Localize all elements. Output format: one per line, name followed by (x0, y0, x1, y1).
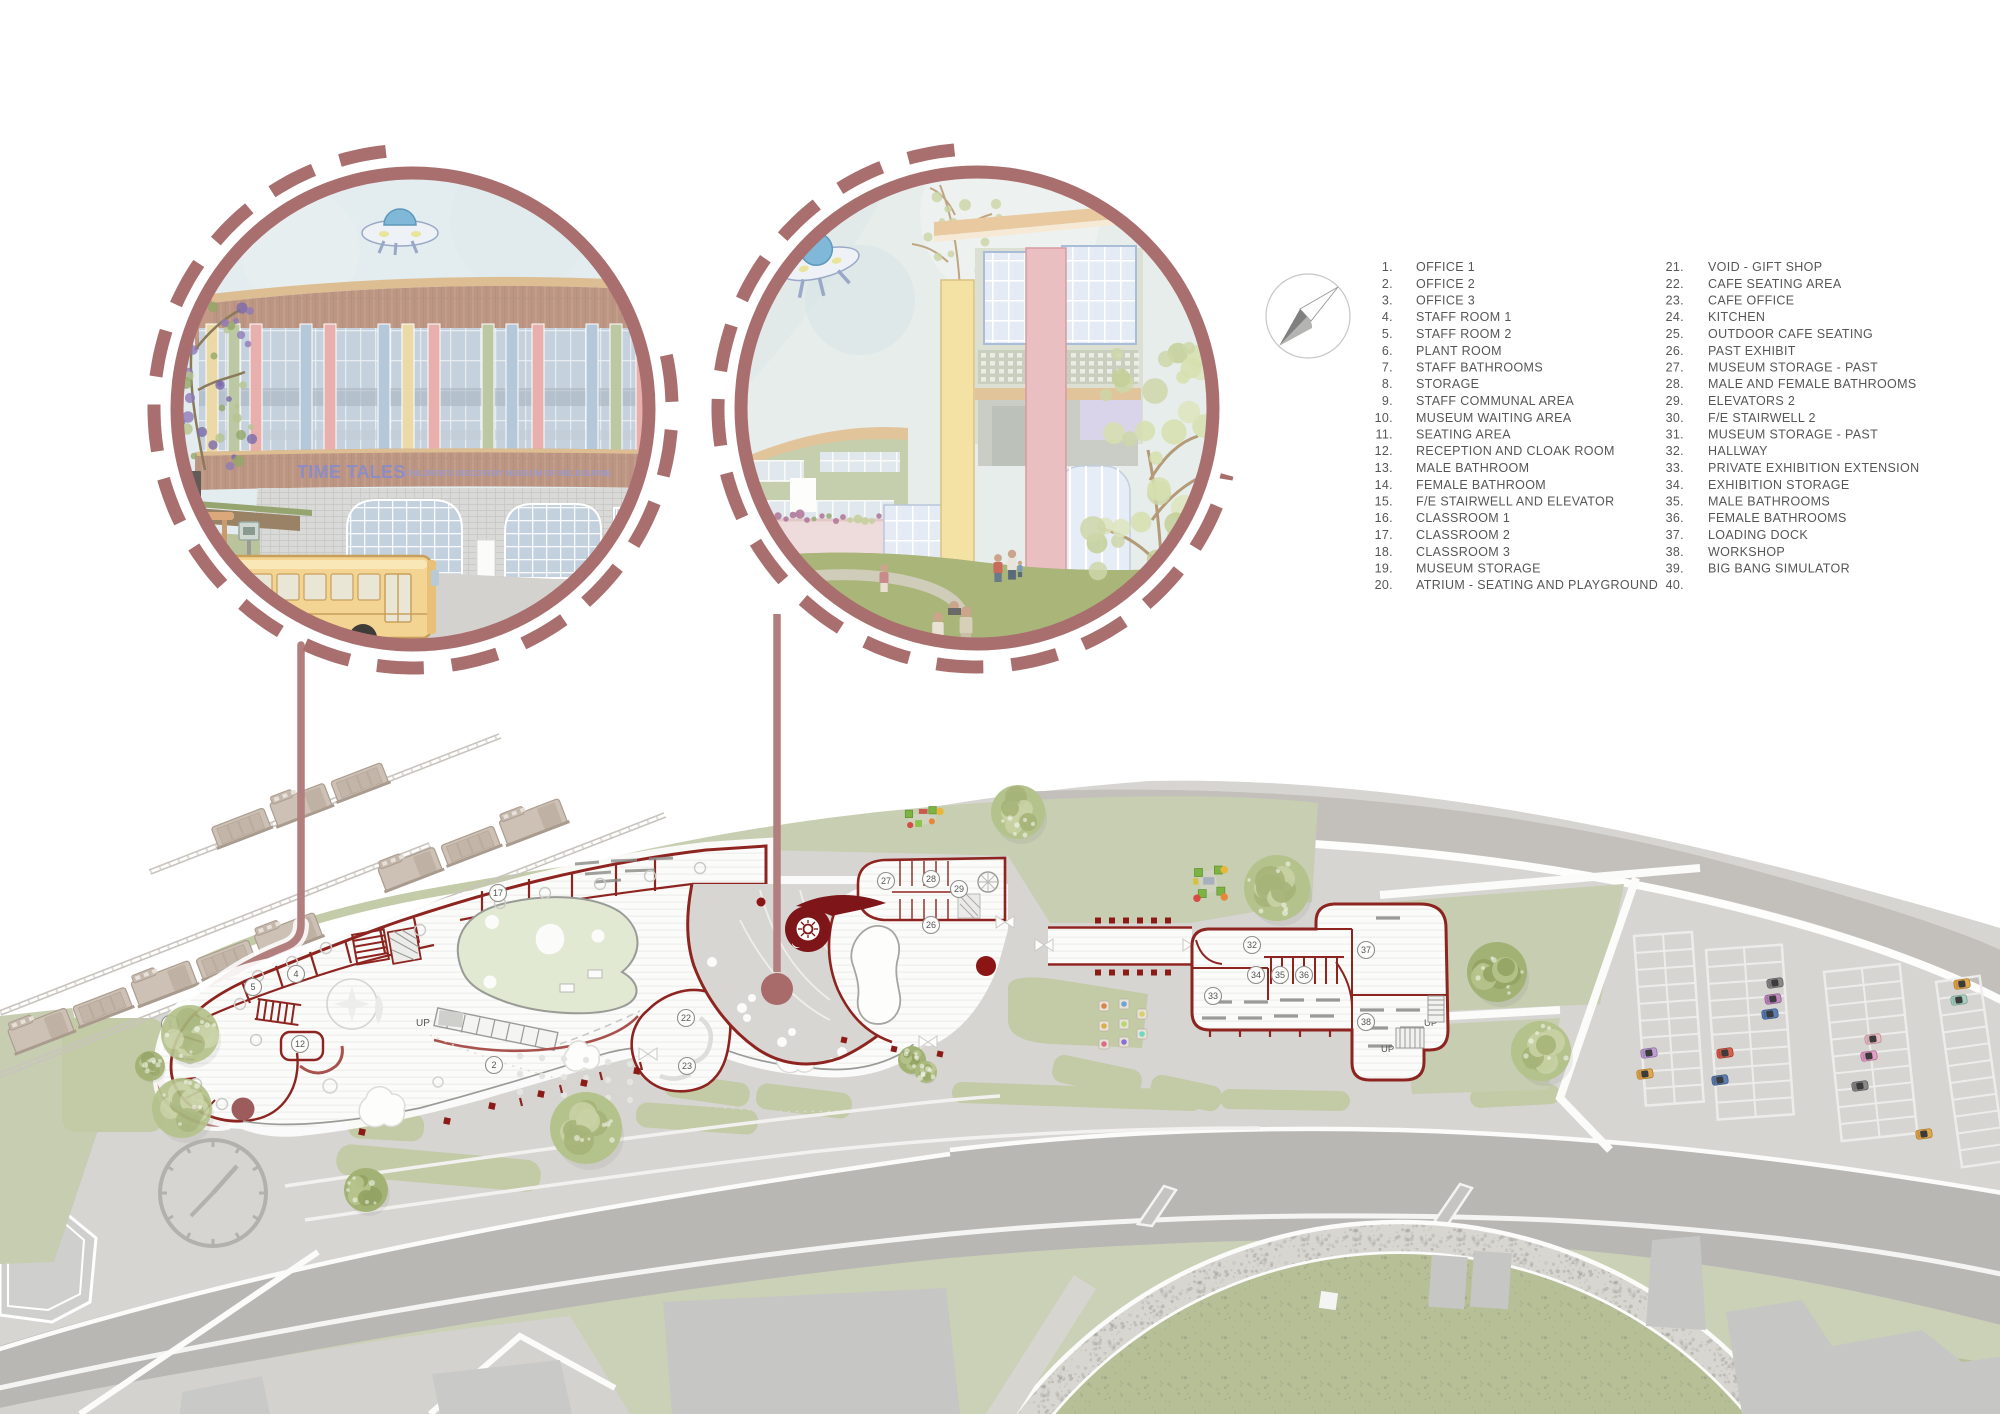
svg-text:23: 23 (682, 1061, 692, 1071)
svg-text:CAFE OFFICE: CAFE OFFICE (1708, 294, 1795, 308)
svg-text:LOADING DOCK: LOADING DOCK (1708, 528, 1808, 542)
svg-text:MALE BATHROOM: MALE BATHROOM (1416, 461, 1529, 475)
svg-text:STAFF BATHROOMS: STAFF BATHROOMS (1416, 361, 1543, 375)
svg-text:16.: 16. (1375, 511, 1393, 525)
svg-text:22: 22 (681, 1013, 691, 1023)
svg-text:15.: 15. (1375, 495, 1393, 509)
svg-text:36: 36 (1299, 970, 1309, 980)
svg-text:28.: 28. (1666, 377, 1684, 391)
svg-text:7.: 7. (1382, 361, 1393, 375)
svg-text:35: 35 (1275, 970, 1285, 980)
svg-text:37.: 37. (1666, 528, 1684, 542)
svg-text:UP: UP (1381, 1044, 1394, 1055)
svg-text:29.: 29. (1666, 394, 1684, 408)
svg-text:12.: 12. (1375, 444, 1393, 458)
svg-text:MUSEUM STORAGE: MUSEUM STORAGE (1416, 562, 1541, 576)
svg-text:20.: 20. (1375, 578, 1393, 592)
svg-text:26: 26 (926, 920, 936, 930)
svg-text:31.: 31. (1666, 428, 1684, 442)
svg-text:MALE BATHROOMS: MALE BATHROOMS (1708, 495, 1830, 509)
svg-text:18.: 18. (1375, 545, 1393, 559)
svg-text:10.: 10. (1375, 411, 1393, 425)
svg-text:38.: 38. (1666, 545, 1684, 559)
svg-text:CLASSROOM 1: CLASSROOM 1 (1416, 511, 1510, 525)
svg-text:27.: 27. (1666, 361, 1684, 375)
svg-text:CLASSROOM 3: CLASSROOM 3 (1416, 545, 1510, 559)
svg-text:F/E STAIRWELL AND ELEVATOR: F/E STAIRWELL AND ELEVATOR (1416, 495, 1615, 509)
svg-text:35.: 35. (1666, 495, 1684, 509)
svg-text:ELEVATORS 2: ELEVATORS 2 (1708, 394, 1795, 408)
svg-text:14.: 14. (1375, 478, 1393, 492)
svg-text:KITCHEN: KITCHEN (1708, 310, 1765, 324)
svg-text:12: 12 (295, 1039, 305, 1049)
svg-text:33: 33 (1208, 991, 1218, 1001)
svg-text:27: 27 (881, 876, 891, 886)
svg-text:21.: 21. (1666, 260, 1684, 274)
svg-text:BIG BANG SIMULATOR: BIG BANG SIMULATOR (1708, 562, 1850, 576)
svg-text:24.: 24. (1666, 310, 1684, 324)
svg-text:6.: 6. (1382, 344, 1393, 358)
svg-text:OUTDOOR CAFE SEATING: OUTDOOR CAFE SEATING (1708, 327, 1873, 341)
svg-text:28: 28 (926, 874, 936, 884)
svg-text:STAFF COMMUNAL AREA: STAFF COMMUNAL AREA (1416, 394, 1574, 408)
svg-text:SEATING AREA: SEATING AREA (1416, 428, 1511, 442)
svg-text:8.: 8. (1382, 377, 1393, 391)
svg-text:2: 2 (491, 1060, 496, 1070)
svg-text:FEMALE BATHROOM: FEMALE BATHROOM (1416, 478, 1546, 492)
svg-text:17: 17 (493, 888, 503, 898)
svg-text:PAST EXHIBIT: PAST EXHIBIT (1708, 344, 1796, 358)
svg-text:40.: 40. (1666, 578, 1684, 592)
svg-text:FEMALE BATHROOMS: FEMALE BATHROOMS (1708, 511, 1847, 525)
svg-text:CAFE SEATING AREA: CAFE SEATING AREA (1708, 277, 1842, 291)
svg-text:1.: 1. (1382, 260, 1393, 274)
svg-text:29: 29 (954, 884, 964, 894)
svg-text:2.: 2. (1382, 277, 1393, 291)
svg-text:MUSEUM WAITING AREA: MUSEUM WAITING AREA (1416, 411, 1572, 425)
svg-text:32.: 32. (1666, 444, 1684, 458)
svg-text:26.: 26. (1666, 344, 1684, 358)
svg-text:CHILDREN'S DISCOVERY MUSEUM OF: CHILDREN'S DISCOVERY MUSEUM OF MELBOURNE (404, 469, 612, 478)
svg-text:3.: 3. (1382, 294, 1393, 308)
svg-text:EXHIBITION STORAGE: EXHIBITION STORAGE (1708, 478, 1850, 492)
svg-text:OFFICE 2: OFFICE 2 (1416, 277, 1475, 291)
svg-text:F/E STAIRWELL 2: F/E STAIRWELL 2 (1708, 411, 1816, 425)
svg-text:38: 38 (1361, 1017, 1371, 1027)
svg-text:STORAGE: STORAGE (1416, 377, 1479, 391)
svg-text:32: 32 (1247, 940, 1257, 950)
svg-text:STAFF ROOM 1: STAFF ROOM 1 (1416, 310, 1512, 324)
svg-text:OFFICE 1: OFFICE 1 (1416, 260, 1475, 274)
svg-text:MALE AND FEMALE BATHROOMS: MALE AND FEMALE BATHROOMS (1708, 377, 1917, 391)
svg-text:UP: UP (416, 1018, 430, 1029)
svg-text:17.: 17. (1375, 528, 1393, 542)
svg-text:22.: 22. (1666, 277, 1684, 291)
svg-text:34.: 34. (1666, 478, 1684, 492)
svg-text:9.: 9. (1382, 394, 1393, 408)
svg-text:4.: 4. (1382, 310, 1393, 324)
svg-text:VOID - GIFT SHOP: VOID - GIFT SHOP (1708, 260, 1822, 274)
svg-text:13.: 13. (1375, 461, 1393, 475)
svg-text:11.: 11. (1376, 428, 1394, 442)
svg-text:30.: 30. (1666, 411, 1684, 425)
svg-text:39.: 39. (1666, 562, 1684, 576)
svg-text:WORKSHOP: WORKSHOP (1708, 545, 1785, 559)
svg-text:4: 4 (293, 969, 298, 979)
svg-text:23.: 23. (1666, 294, 1684, 308)
svg-text:19.: 19. (1375, 562, 1393, 576)
svg-text:STAFF ROOM 2: STAFF ROOM 2 (1416, 327, 1512, 341)
svg-text:MUSEUM STORAGE - PAST: MUSEUM STORAGE - PAST (1708, 361, 1878, 375)
svg-text:MUSEUM STORAGE - PAST: MUSEUM STORAGE - PAST (1708, 428, 1878, 442)
svg-text:PRIVATE EXHIBITION EXTENSION: PRIVATE EXHIBITION EXTENSION (1708, 461, 1919, 475)
svg-text:37: 37 (1361, 945, 1371, 955)
svg-text:HALLWAY: HALLWAY (1708, 444, 1768, 458)
svg-text:5: 5 (250, 982, 255, 992)
svg-text:OFFICE 3: OFFICE 3 (1416, 294, 1475, 308)
svg-text:TIME TALES: TIME TALES (297, 462, 406, 482)
svg-text:25.: 25. (1666, 327, 1684, 341)
svg-text:PLANT ROOM: PLANT ROOM (1416, 344, 1502, 358)
svg-text:36.: 36. (1666, 511, 1684, 525)
svg-text:ATRIUM - SEATING AND PLAYGROUN: ATRIUM - SEATING AND PLAYGROUND (1416, 578, 1658, 592)
svg-text:5.: 5. (1382, 327, 1393, 341)
svg-text:RECEPTION AND CLOAK ROOM: RECEPTION AND CLOAK ROOM (1416, 444, 1615, 458)
svg-text:34: 34 (1251, 970, 1261, 980)
svg-text:CLASSROOM 2: CLASSROOM 2 (1416, 528, 1510, 542)
svg-text:33.: 33. (1666, 461, 1684, 475)
